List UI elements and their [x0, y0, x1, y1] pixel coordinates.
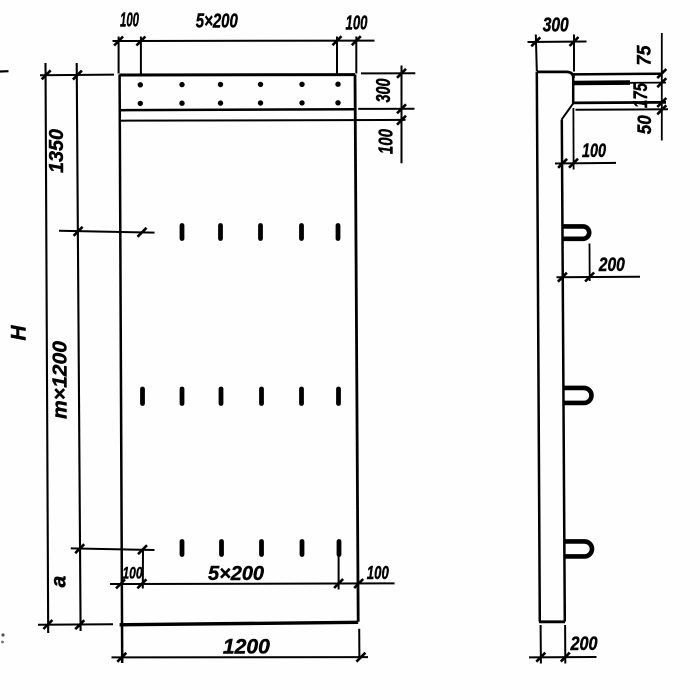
svg-text:200: 200 — [570, 634, 598, 655]
svg-text:100: 100 — [582, 141, 606, 162]
svg-text:1200: 1200 — [223, 636, 270, 659]
svg-text:50: 50 — [635, 115, 656, 134]
svg-text:100: 100 — [376, 129, 398, 154]
svg-text:75: 75 — [635, 45, 656, 65]
svg-text:1350: 1350 — [46, 129, 68, 173]
svg-text:5×200: 5×200 — [196, 11, 238, 33]
svg-text:100: 100 — [367, 563, 389, 583]
svg-text:300: 300 — [543, 15, 569, 37]
svg-text:5×200: 5×200 — [208, 563, 264, 585]
svg-text:200: 200 — [598, 255, 625, 276]
svg-text:m×1200: m×1200 — [50, 341, 72, 419]
svg-text:300: 300 — [373, 79, 395, 103]
svg-text:100: 100 — [123, 564, 143, 583]
svg-text:175: 175 — [631, 83, 652, 108]
svg-text:a: a — [48, 575, 71, 587]
svg-text:H: H — [8, 325, 31, 341]
svg-text:100: 100 — [120, 10, 139, 32]
svg-text:100: 100 — [346, 13, 368, 35]
